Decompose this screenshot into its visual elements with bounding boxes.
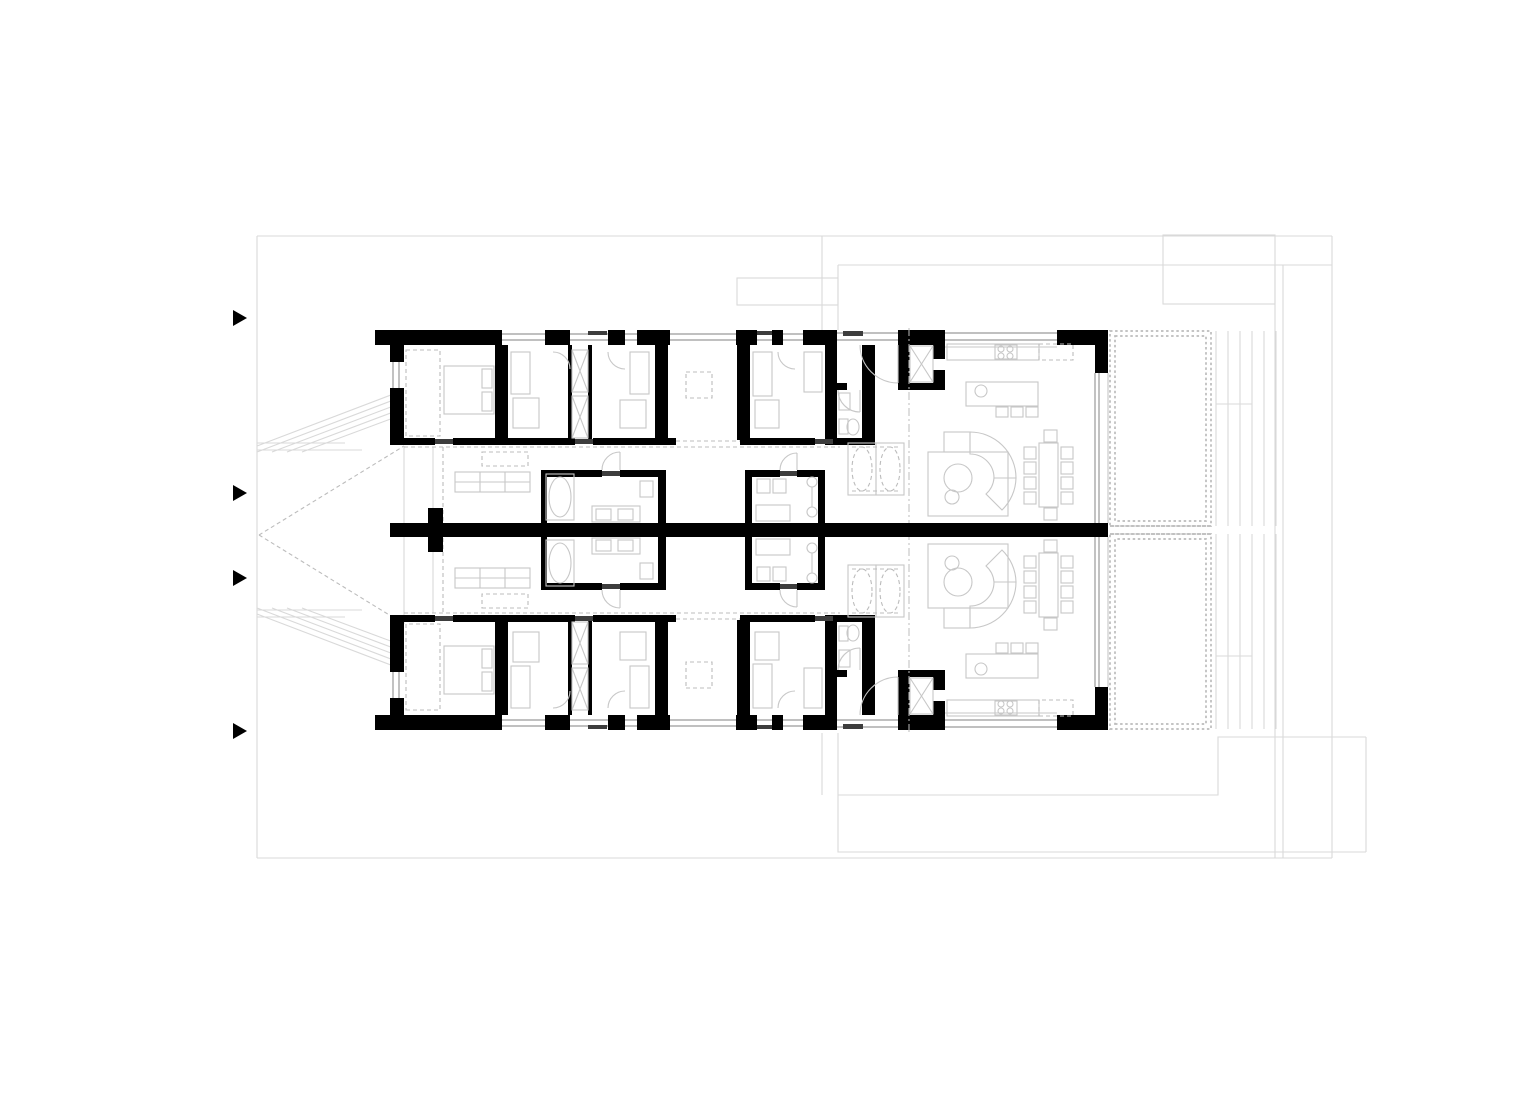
door-swing xyxy=(553,352,570,369)
unit-upper xyxy=(375,328,1276,530)
bedroom-3 xyxy=(608,352,649,428)
terrace-steps xyxy=(1216,331,1276,526)
skylight-dashed xyxy=(686,372,712,398)
armchair xyxy=(944,464,972,492)
door-swing xyxy=(608,352,625,369)
radiator xyxy=(807,477,817,487)
bathtub xyxy=(549,477,571,517)
door-swing xyxy=(778,352,795,369)
chair xyxy=(1024,477,1036,489)
corner-wall-right xyxy=(1057,330,1108,373)
chair xyxy=(1061,462,1073,474)
wardrobe-dashed xyxy=(406,350,440,436)
dining-table xyxy=(1039,443,1058,507)
chair xyxy=(1024,492,1036,504)
section-arrow-icon xyxy=(233,310,247,326)
kitchen xyxy=(947,344,1073,417)
section-arrow-icon xyxy=(233,723,247,739)
bathroom-2 xyxy=(756,453,817,521)
door-swing xyxy=(602,452,620,470)
island-sink xyxy=(975,385,987,397)
dressing-closet xyxy=(572,350,588,438)
terrace-dashed xyxy=(1110,331,1211,526)
bedroom-2 xyxy=(511,352,570,428)
floor-plan-page xyxy=(0,0,1536,1120)
desk xyxy=(620,400,646,428)
dining-set xyxy=(1024,430,1073,520)
chair xyxy=(1061,447,1073,459)
door-swing xyxy=(780,453,797,470)
ottoman xyxy=(945,490,959,504)
chair xyxy=(1061,477,1073,489)
living-room xyxy=(928,430,1073,520)
chair xyxy=(1044,430,1057,442)
stool xyxy=(996,407,1008,417)
bidet xyxy=(773,479,786,493)
master-bedroom xyxy=(406,350,494,436)
door-threshold xyxy=(815,439,833,444)
single-bed xyxy=(511,352,530,394)
entry-threshold xyxy=(843,331,863,336)
bathtub-surround xyxy=(546,474,574,520)
single-bed xyxy=(753,352,772,396)
door-threshold xyxy=(435,439,453,444)
kitchen-island xyxy=(966,382,1038,406)
chair xyxy=(1061,492,1073,504)
party-wall-pier xyxy=(428,508,443,552)
chair xyxy=(1024,462,1036,474)
site-plan-lines xyxy=(257,235,1366,858)
kitchen-counter xyxy=(947,344,1039,360)
staircase xyxy=(848,443,904,495)
radiator xyxy=(807,507,817,517)
glass-facade xyxy=(1095,373,1099,523)
sink xyxy=(596,509,611,520)
curved-sofa xyxy=(944,432,1016,510)
driveway-hatching-bottom xyxy=(257,608,404,670)
sink xyxy=(618,509,633,520)
desk xyxy=(513,398,539,428)
chair xyxy=(1024,447,1036,459)
floor-plan-canvas xyxy=(0,0,1536,1120)
double-bed xyxy=(444,366,494,414)
driveway-hatching-top xyxy=(257,390,404,452)
guest-wc xyxy=(838,390,860,435)
bathroom-1 xyxy=(546,452,653,522)
desk xyxy=(755,400,779,428)
section-arrow-icon xyxy=(233,570,247,586)
section-arrow-icon xyxy=(233,485,247,501)
toilet xyxy=(847,419,859,435)
toilet xyxy=(757,479,770,493)
vanity xyxy=(756,505,790,521)
stool xyxy=(1026,407,1038,417)
plot-boundary xyxy=(257,235,1332,858)
section-markers xyxy=(233,310,247,739)
rug xyxy=(928,452,1008,516)
door-threshold xyxy=(575,439,593,444)
skylight-dashed xyxy=(482,452,528,466)
wardrobe xyxy=(804,352,822,392)
toilet xyxy=(640,481,653,497)
single-bed xyxy=(630,352,649,394)
party-wall xyxy=(390,508,1211,552)
stool xyxy=(1011,407,1023,417)
bedroom-4 xyxy=(753,352,822,428)
entry-walk xyxy=(838,737,1366,852)
chair xyxy=(1044,508,1057,520)
unit-lower xyxy=(375,530,1276,732)
